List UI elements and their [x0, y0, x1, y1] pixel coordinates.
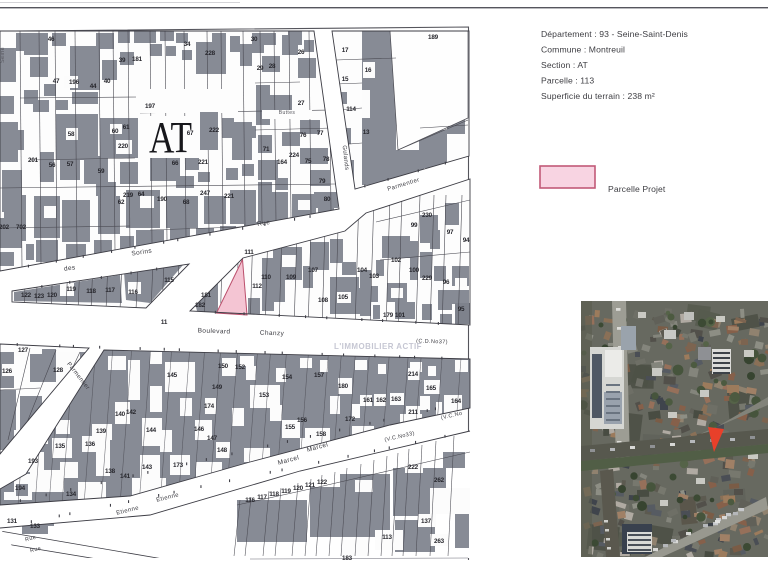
svg-text:219: 219 [123, 192, 134, 199]
svg-text:181: 181 [132, 56, 143, 63]
svg-text:189: 189 [428, 34, 439, 41]
svg-text:154: 154 [282, 374, 293, 381]
svg-text:152: 152 [235, 364, 246, 371]
svg-text:60: 60 [112, 128, 119, 135]
svg-text:97: 97 [447, 229, 454, 236]
svg-text:183: 183 [342, 555, 353, 562]
svg-text:122: 122 [317, 479, 328, 486]
svg-text:164: 164 [451, 398, 462, 405]
svg-text:117: 117 [105, 287, 115, 294]
svg-text:Boulevard: Boulevard [198, 327, 231, 335]
svg-text:120: 120 [293, 485, 304, 492]
svg-text:108: 108 [318, 297, 329, 304]
svg-text:40: 40 [104, 78, 111, 85]
svg-text:179: 179 [383, 312, 394, 319]
svg-text:247: 247 [200, 190, 211, 197]
svg-text:96: 96 [443, 279, 450, 286]
svg-text:Parcelle : 113: Parcelle : 113 [541, 76, 594, 86]
svg-text:173: 173 [173, 462, 184, 469]
svg-text:68: 68 [183, 199, 190, 206]
svg-text:224: 224 [289, 152, 300, 159]
svg-text:161: 161 [363, 397, 374, 404]
svg-text:221: 221 [224, 193, 235, 200]
svg-text:80: 80 [324, 196, 331, 203]
svg-text:158: 158 [316, 431, 327, 438]
svg-text:59: 59 [98, 168, 105, 175]
svg-text:117: 117 [257, 494, 267, 501]
svg-text:77: 77 [317, 130, 324, 137]
svg-text:67: 67 [187, 130, 194, 137]
svg-text:105: 105 [338, 294, 349, 301]
svg-text:58: 58 [68, 131, 75, 138]
svg-text:153: 153 [259, 392, 270, 399]
svg-text:196: 196 [69, 79, 80, 86]
svg-text:Chanzy: Chanzy [260, 330, 285, 338]
svg-text:47: 47 [53, 78, 60, 85]
svg-text:120: 120 [47, 292, 58, 299]
svg-text:136: 136 [85, 441, 96, 448]
svg-text:262: 262 [434, 477, 445, 484]
svg-text:197: 197 [145, 103, 156, 110]
svg-text:182: 182 [195, 302, 206, 309]
svg-text:34: 34 [184, 41, 191, 48]
svg-text:116: 116 [245, 497, 255, 504]
svg-text:121: 121 [305, 482, 316, 489]
svg-text:128: 128 [53, 367, 64, 374]
svg-text:28: 28 [269, 63, 276, 70]
svg-text:16: 16 [365, 67, 372, 74]
svg-text:127: 127 [18, 347, 29, 354]
svg-text:164: 164 [277, 159, 288, 166]
svg-text:202: 202 [0, 224, 10, 231]
svg-text:107: 107 [308, 267, 319, 274]
svg-text:94: 94 [463, 237, 470, 244]
svg-text:115: 115 [164, 277, 174, 284]
svg-text:11: 11 [161, 319, 168, 326]
svg-text:56: 56 [49, 162, 56, 169]
svg-text:165: 165 [426, 385, 437, 392]
svg-text:Parcelle Projet: Parcelle Projet [608, 184, 666, 194]
svg-text:149: 149 [212, 384, 223, 391]
svg-text:104: 104 [357, 267, 368, 274]
svg-text:148: 148 [217, 447, 228, 454]
svg-text:79: 79 [319, 178, 326, 185]
svg-text:57: 57 [67, 161, 74, 168]
svg-text:144: 144 [146, 427, 157, 434]
svg-text:131: 131 [7, 518, 18, 525]
svg-text:Département : 93 - Seine-Saint: Département : 93 - Seine-Saint-Denis [541, 29, 688, 39]
svg-text:222: 222 [408, 464, 419, 471]
svg-text:13: 13 [363, 129, 370, 136]
svg-text:702: 702 [16, 224, 27, 231]
svg-text:15: 15 [342, 76, 349, 83]
svg-text:Seine: Seine [0, 47, 6, 63]
svg-text:201: 201 [28, 157, 39, 164]
svg-text:101: 101 [395, 312, 406, 319]
svg-text:76: 76 [300, 132, 307, 139]
svg-text:263: 263 [434, 538, 445, 545]
svg-text:Buttes: Buttes [279, 110, 296, 116]
svg-text:61: 61 [123, 124, 130, 131]
svg-text:75: 75 [305, 158, 312, 165]
svg-text:146: 146 [194, 426, 205, 433]
svg-text:137: 137 [421, 518, 432, 525]
svg-text:62: 62 [118, 199, 125, 206]
svg-text:135: 135 [55, 443, 66, 450]
svg-text:118: 118 [86, 288, 96, 295]
svg-text:139: 139 [96, 428, 107, 435]
svg-text:221: 221 [198, 159, 209, 166]
svg-text:181: 181 [201, 292, 212, 299]
svg-text:46: 46 [48, 36, 55, 43]
svg-text:39: 39 [119, 57, 126, 64]
svg-text:78: 78 [323, 156, 330, 163]
svg-text:133: 133 [30, 523, 41, 530]
svg-text:114: 114 [346, 106, 356, 113]
svg-text:180: 180 [338, 383, 349, 390]
svg-text:214: 214 [408, 371, 419, 378]
svg-text:66: 66 [172, 160, 179, 167]
svg-text:118: 118 [269, 491, 279, 498]
svg-text:119: 119 [66, 286, 76, 293]
svg-text:142: 142 [126, 409, 137, 416]
svg-text:155: 155 [285, 424, 296, 431]
svg-text:228: 228 [205, 50, 216, 57]
svg-text:26: 26 [298, 49, 305, 56]
svg-text:122: 122 [21, 292, 32, 299]
svg-text:211: 211 [408, 409, 418, 416]
svg-text:99: 99 [411, 222, 418, 229]
svg-text:138: 138 [105, 468, 116, 475]
svg-text:194: 194 [15, 485, 26, 492]
svg-text:AT: AT [149, 113, 192, 162]
svg-text:229: 229 [422, 275, 433, 282]
svg-text:126: 126 [2, 368, 13, 375]
svg-text:143: 143 [142, 464, 153, 471]
svg-text:113: 113 [382, 534, 392, 541]
svg-text:193: 193 [28, 458, 39, 465]
svg-text:116: 116 [128, 289, 138, 296]
svg-text:Commune : Montreuil: Commune : Montreuil [541, 45, 625, 55]
svg-text:100: 100 [409, 267, 420, 274]
svg-text:44: 44 [90, 83, 97, 90]
svg-text:109: 109 [286, 274, 297, 281]
svg-text:17: 17 [342, 47, 349, 54]
svg-text:112: 112 [252, 283, 262, 290]
svg-text:172: 172 [345, 416, 356, 423]
svg-text:222: 222 [209, 127, 220, 134]
svg-text:141: 141 [120, 473, 131, 480]
svg-text:71: 71 [263, 146, 270, 153]
svg-text:111: 111 [244, 249, 254, 256]
svg-text:150: 150 [218, 363, 229, 370]
svg-text:30: 30 [251, 36, 258, 43]
svg-text:110: 110 [261, 274, 271, 281]
svg-text:190: 190 [157, 196, 168, 203]
svg-text:119: 119 [281, 488, 291, 495]
svg-text:27: 27 [298, 100, 305, 107]
svg-text:102: 102 [391, 257, 402, 264]
svg-text:103: 103 [369, 273, 380, 280]
svg-text:140: 140 [115, 411, 126, 418]
svg-text:174: 174 [204, 403, 215, 410]
svg-text:123: 123 [34, 293, 45, 300]
svg-text:162: 162 [376, 397, 387, 404]
svg-text:Section : AT: Section : AT [541, 60, 589, 70]
svg-text:163: 163 [391, 396, 402, 403]
svg-text:95: 95 [458, 306, 465, 313]
svg-text:L'IMMOBILIER ACTIF: L'IMMOBILIER ACTIF [334, 341, 422, 351]
svg-text:230: 230 [422, 212, 433, 219]
svg-text:220: 220 [118, 143, 129, 150]
svg-text:64: 64 [138, 191, 145, 198]
svg-text:Superficie du terrain : 238 m²: Superficie du terrain : 238 m² [541, 91, 655, 101]
svg-text:134: 134 [66, 491, 77, 498]
svg-text:145: 145 [167, 372, 178, 379]
svg-text:157: 157 [314, 372, 325, 379]
svg-text:29: 29 [257, 65, 264, 72]
svg-text:156: 156 [297, 417, 308, 424]
svg-text:147: 147 [207, 435, 218, 442]
